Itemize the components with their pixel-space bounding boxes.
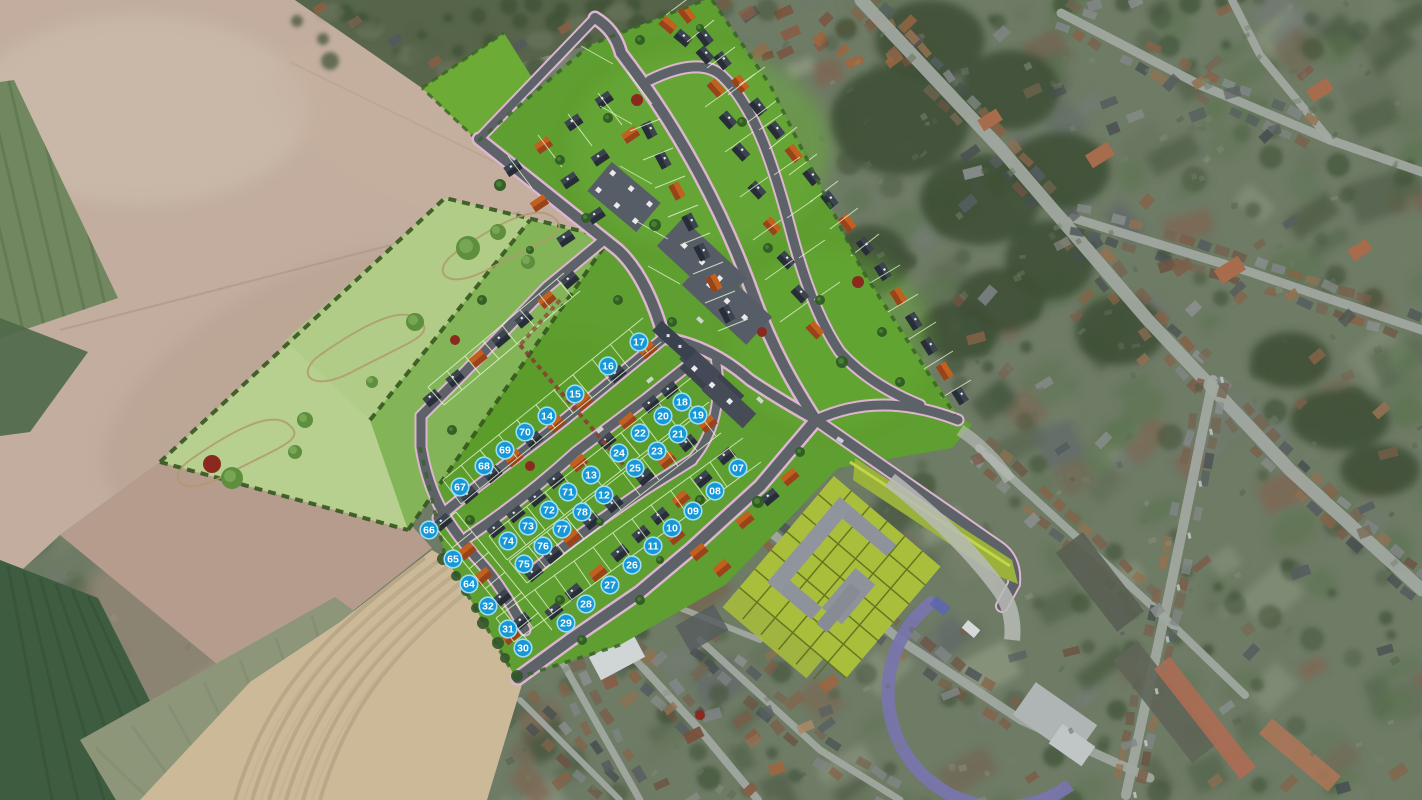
svg-text:08: 08 <box>709 486 721 498</box>
svg-text:72: 72 <box>543 505 555 517</box>
svg-text:20: 20 <box>657 411 669 423</box>
svg-text:17: 17 <box>633 337 645 349</box>
svg-text:22: 22 <box>634 428 646 440</box>
svg-text:21: 21 <box>672 429 684 441</box>
svg-text:73: 73 <box>522 521 534 533</box>
svg-text:69: 69 <box>499 445 511 457</box>
svg-text:15: 15 <box>569 389 581 401</box>
svg-text:30: 30 <box>517 643 529 655</box>
svg-text:11: 11 <box>647 541 658 553</box>
svg-text:75: 75 <box>518 559 530 571</box>
svg-text:23: 23 <box>651 446 663 458</box>
svg-text:19: 19 <box>692 410 704 422</box>
svg-text:24: 24 <box>613 448 625 460</box>
svg-text:74: 74 <box>502 536 514 548</box>
svg-text:18: 18 <box>676 397 688 409</box>
svg-text:14: 14 <box>541 411 553 423</box>
svg-text:77: 77 <box>556 524 568 536</box>
svg-text:13: 13 <box>585 470 597 482</box>
svg-text:25: 25 <box>629 463 641 475</box>
svg-text:29: 29 <box>560 618 572 630</box>
svg-text:78: 78 <box>576 507 588 519</box>
svg-text:09: 09 <box>687 506 699 518</box>
svg-text:70: 70 <box>519 427 531 439</box>
svg-text:27: 27 <box>604 580 616 592</box>
svg-text:31: 31 <box>502 624 514 636</box>
svg-text:16: 16 <box>602 361 614 373</box>
svg-text:67: 67 <box>454 482 466 494</box>
svg-text:12: 12 <box>598 490 610 502</box>
svg-text:10: 10 <box>666 523 678 535</box>
svg-text:66: 66 <box>423 525 435 537</box>
svg-text:26: 26 <box>626 560 638 572</box>
svg-text:07: 07 <box>732 463 744 475</box>
svg-text:32: 32 <box>482 601 494 613</box>
svg-text:76: 76 <box>537 541 549 553</box>
svg-text:65: 65 <box>447 554 459 566</box>
svg-text:71: 71 <box>562 487 574 499</box>
svg-text:64: 64 <box>463 579 475 591</box>
svg-text:28: 28 <box>580 599 592 611</box>
svg-text:68: 68 <box>478 461 490 473</box>
